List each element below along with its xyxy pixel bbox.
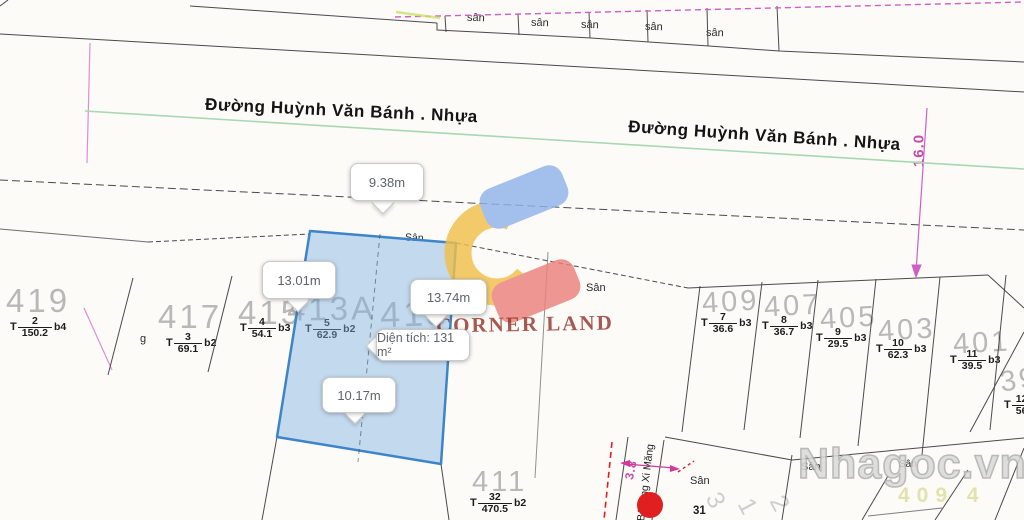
nhagoc-watermark: Nhagoc.vn	[798, 440, 1024, 489]
measurement-value: 9.38m	[369, 175, 405, 190]
cadastral-map-screenshot: Nhagoc.vn 409 4 Đường Huỳnh Văn Bánh . N…	[0, 0, 1024, 520]
measurement-value: 13.01m	[277, 273, 320, 288]
measurement-tooltip: 13.01m	[262, 261, 336, 299]
measurement-tooltip: 13.74m	[410, 279, 487, 315]
area-value: Diện tích: 131 m²	[377, 331, 469, 359]
measurement-value: 10.17m	[337, 388, 380, 403]
measurement-value: 13.74m	[427, 290, 470, 305]
logo-blue-shape	[475, 161, 572, 233]
measurement-tooltip: 10.17m	[322, 377, 396, 413]
red-location-marker	[637, 492, 663, 518]
area-tooltip: Diện tích: 131 m²	[376, 329, 470, 361]
measurement-tooltip: 9.38m	[350, 163, 424, 201]
